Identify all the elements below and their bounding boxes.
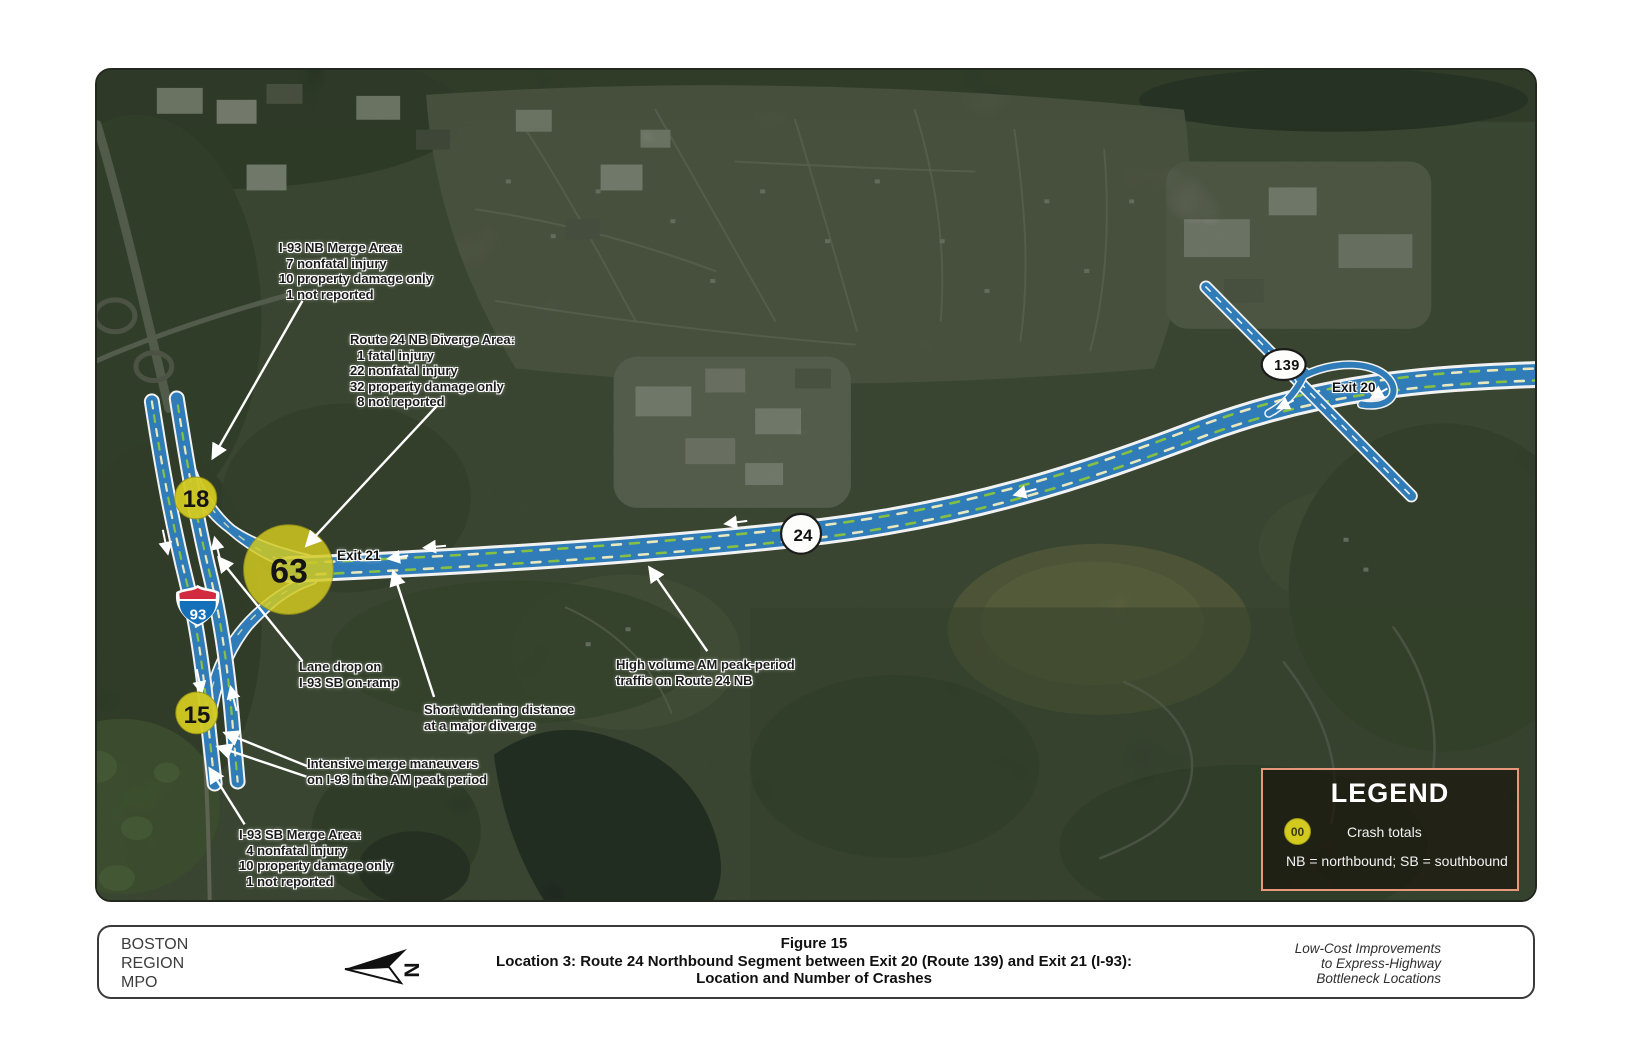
annotation-route24-diverge: Route 24 NB Diverge Area: 1 fatal injury… <box>350 332 515 410</box>
annotation-i93-sb-merge: I-93 SB Merge Area: 4 nonfatal injury 10… <box>239 827 393 889</box>
figure-subtitle: Location and Number of Crashes <box>425 970 1203 988</box>
annotation-i93-nb-merge: I-93 NB Merge Area: 7 nonfatal injury 10… <box>279 240 433 302</box>
legend-box: LEGEND 00 Crash totals NB = northbound; … <box>1261 768 1519 891</box>
caption-bar: BOSTON REGION MPO N Figure 15 Location 3… <box>97 925 1535 999</box>
legend-crash-symbol: 00 <box>1284 818 1311 845</box>
agency-name: BOSTON REGION MPO <box>121 935 231 992</box>
annotation-lane-drop: Lane drop on I-93 SB on-ramp <box>299 659 399 690</box>
route24-shield-number: 24 <box>794 526 813 546</box>
aerial-map: I-93 NB Merge Area: 7 nonfatal injury 10… <box>95 68 1537 902</box>
figure-number: Figure 15 <box>425 935 1203 953</box>
project-note: Low-Cost Improvements to Express-Highway… <box>1203 941 1533 986</box>
figure-title: Location 3: Route 24 Northbound Segment … <box>425 953 1203 971</box>
i93-shield-number: 93 <box>190 607 207 624</box>
route139-shield-number: 139 <box>1274 358 1300 374</box>
annotation-short-widening: Short widening distance at a major diver… <box>424 702 574 733</box>
exit-20-label: Exit 20 <box>1332 380 1376 395</box>
north-letter: N <box>401 962 424 977</box>
exit-21-label: Exit 21 <box>337 548 381 563</box>
north-arrow-icon: N <box>343 947 425 989</box>
annotation-high-volume: High volume AM peak-period traffic on Ro… <box>616 657 795 688</box>
figure-page: I-93 NB Merge Area: 7 nonfatal injury 10… <box>0 0 1632 1056</box>
legend-title: LEGEND <box>1263 778 1517 809</box>
crash-total-63: 63 <box>270 553 308 592</box>
legend-abbreviation-note: NB = northbound; SB = southbound <box>1263 853 1517 869</box>
annotation-intensive-merge: Intensive merge maneuvers on I-93 in the… <box>307 756 487 787</box>
crash-total-18: 18 <box>183 486 210 514</box>
figure-title-block: Figure 15 Location 3: Route 24 Northboun… <box>425 935 1203 988</box>
legend-crash-label: Crash totals <box>1347 824 1422 840</box>
crash-total-15: 15 <box>184 702 211 730</box>
